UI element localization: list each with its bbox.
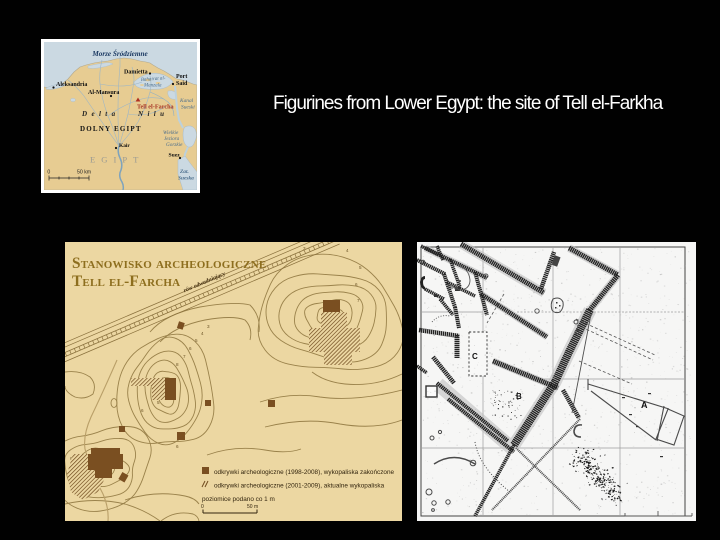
svg-text:Sueska: Sueska <box>178 176 194 182</box>
svg-text:8: 8 <box>176 362 179 367</box>
svg-text:Port: Port <box>176 74 187 80</box>
svg-text:Kair: Kair <box>119 143 130 149</box>
svg-text:Suez: Suez <box>169 153 181 159</box>
svg-text:odkrywki archeologiczne (1998-: odkrywki archeologiczne (1998-2008), wyk… <box>214 469 395 476</box>
svg-text:5: 5 <box>157 400 160 405</box>
svg-text:Al-Mansura: Al-Mansura <box>88 90 119 96</box>
svg-text:6: 6 <box>189 346 192 351</box>
svg-text:Morze Śródziemne: Morze Śródziemne <box>91 48 148 58</box>
svg-text:4: 4 <box>346 248 349 253</box>
svg-text:Said: Said <box>176 81 188 87</box>
svg-text:Gorzkie: Gorzkie <box>166 142 183 148</box>
svg-text:Sueski: Sueski <box>181 105 195 111</box>
svg-text:C: C <box>472 352 478 361</box>
svg-text:4: 4 <box>201 331 204 336</box>
svg-text:Delta Nilu: Delta Nilu <box>81 110 168 118</box>
svg-text:Zat.: Zat. <box>179 169 189 175</box>
svg-text:6: 6 <box>141 408 144 413</box>
svg-text:3: 3 <box>207 324 210 329</box>
svg-text:Stanowisko archeologiczne: Stanowisko archeologiczne <box>72 255 266 272</box>
svg-text:A: A <box>641 400 648 410</box>
svg-text:5: 5 <box>359 265 362 270</box>
svg-text:DOLNY EGIPT: DOLNY EGIPT <box>80 125 142 133</box>
svg-text:7: 7 <box>357 298 360 303</box>
svg-text:5: 5 <box>195 338 198 343</box>
svg-text:odkrywki archeologiczne (2001-: odkrywki archeologiczne (2001-2009), akt… <box>214 483 385 490</box>
svg-text:Kanal: Kanal <box>179 98 194 104</box>
svg-text:6: 6 <box>355 282 358 287</box>
svg-text:6: 6 <box>176 444 179 449</box>
svg-text:0: 0 <box>201 504 204 510</box>
svg-text:Damietta: Damietta <box>124 70 148 76</box>
svg-text:B: B <box>516 392 522 401</box>
svg-text:0: 0 <box>47 170 50 176</box>
svg-text:50 km: 50 km <box>77 170 91 176</box>
svg-text:poziomice podano co 1 m: poziomice podano co 1 m <box>202 496 275 503</box>
svg-text:Aleksandria: Aleksandria <box>56 82 87 88</box>
svg-text:Tell el-Farcha: Tell el-Farcha <box>72 273 180 290</box>
svg-text:7: 7 <box>183 354 186 359</box>
svg-text:EGIPT: EGIPT <box>90 155 144 165</box>
svg-text:Manzala: Manzala <box>143 84 162 89</box>
svg-text:50 m: 50 m <box>247 504 258 510</box>
